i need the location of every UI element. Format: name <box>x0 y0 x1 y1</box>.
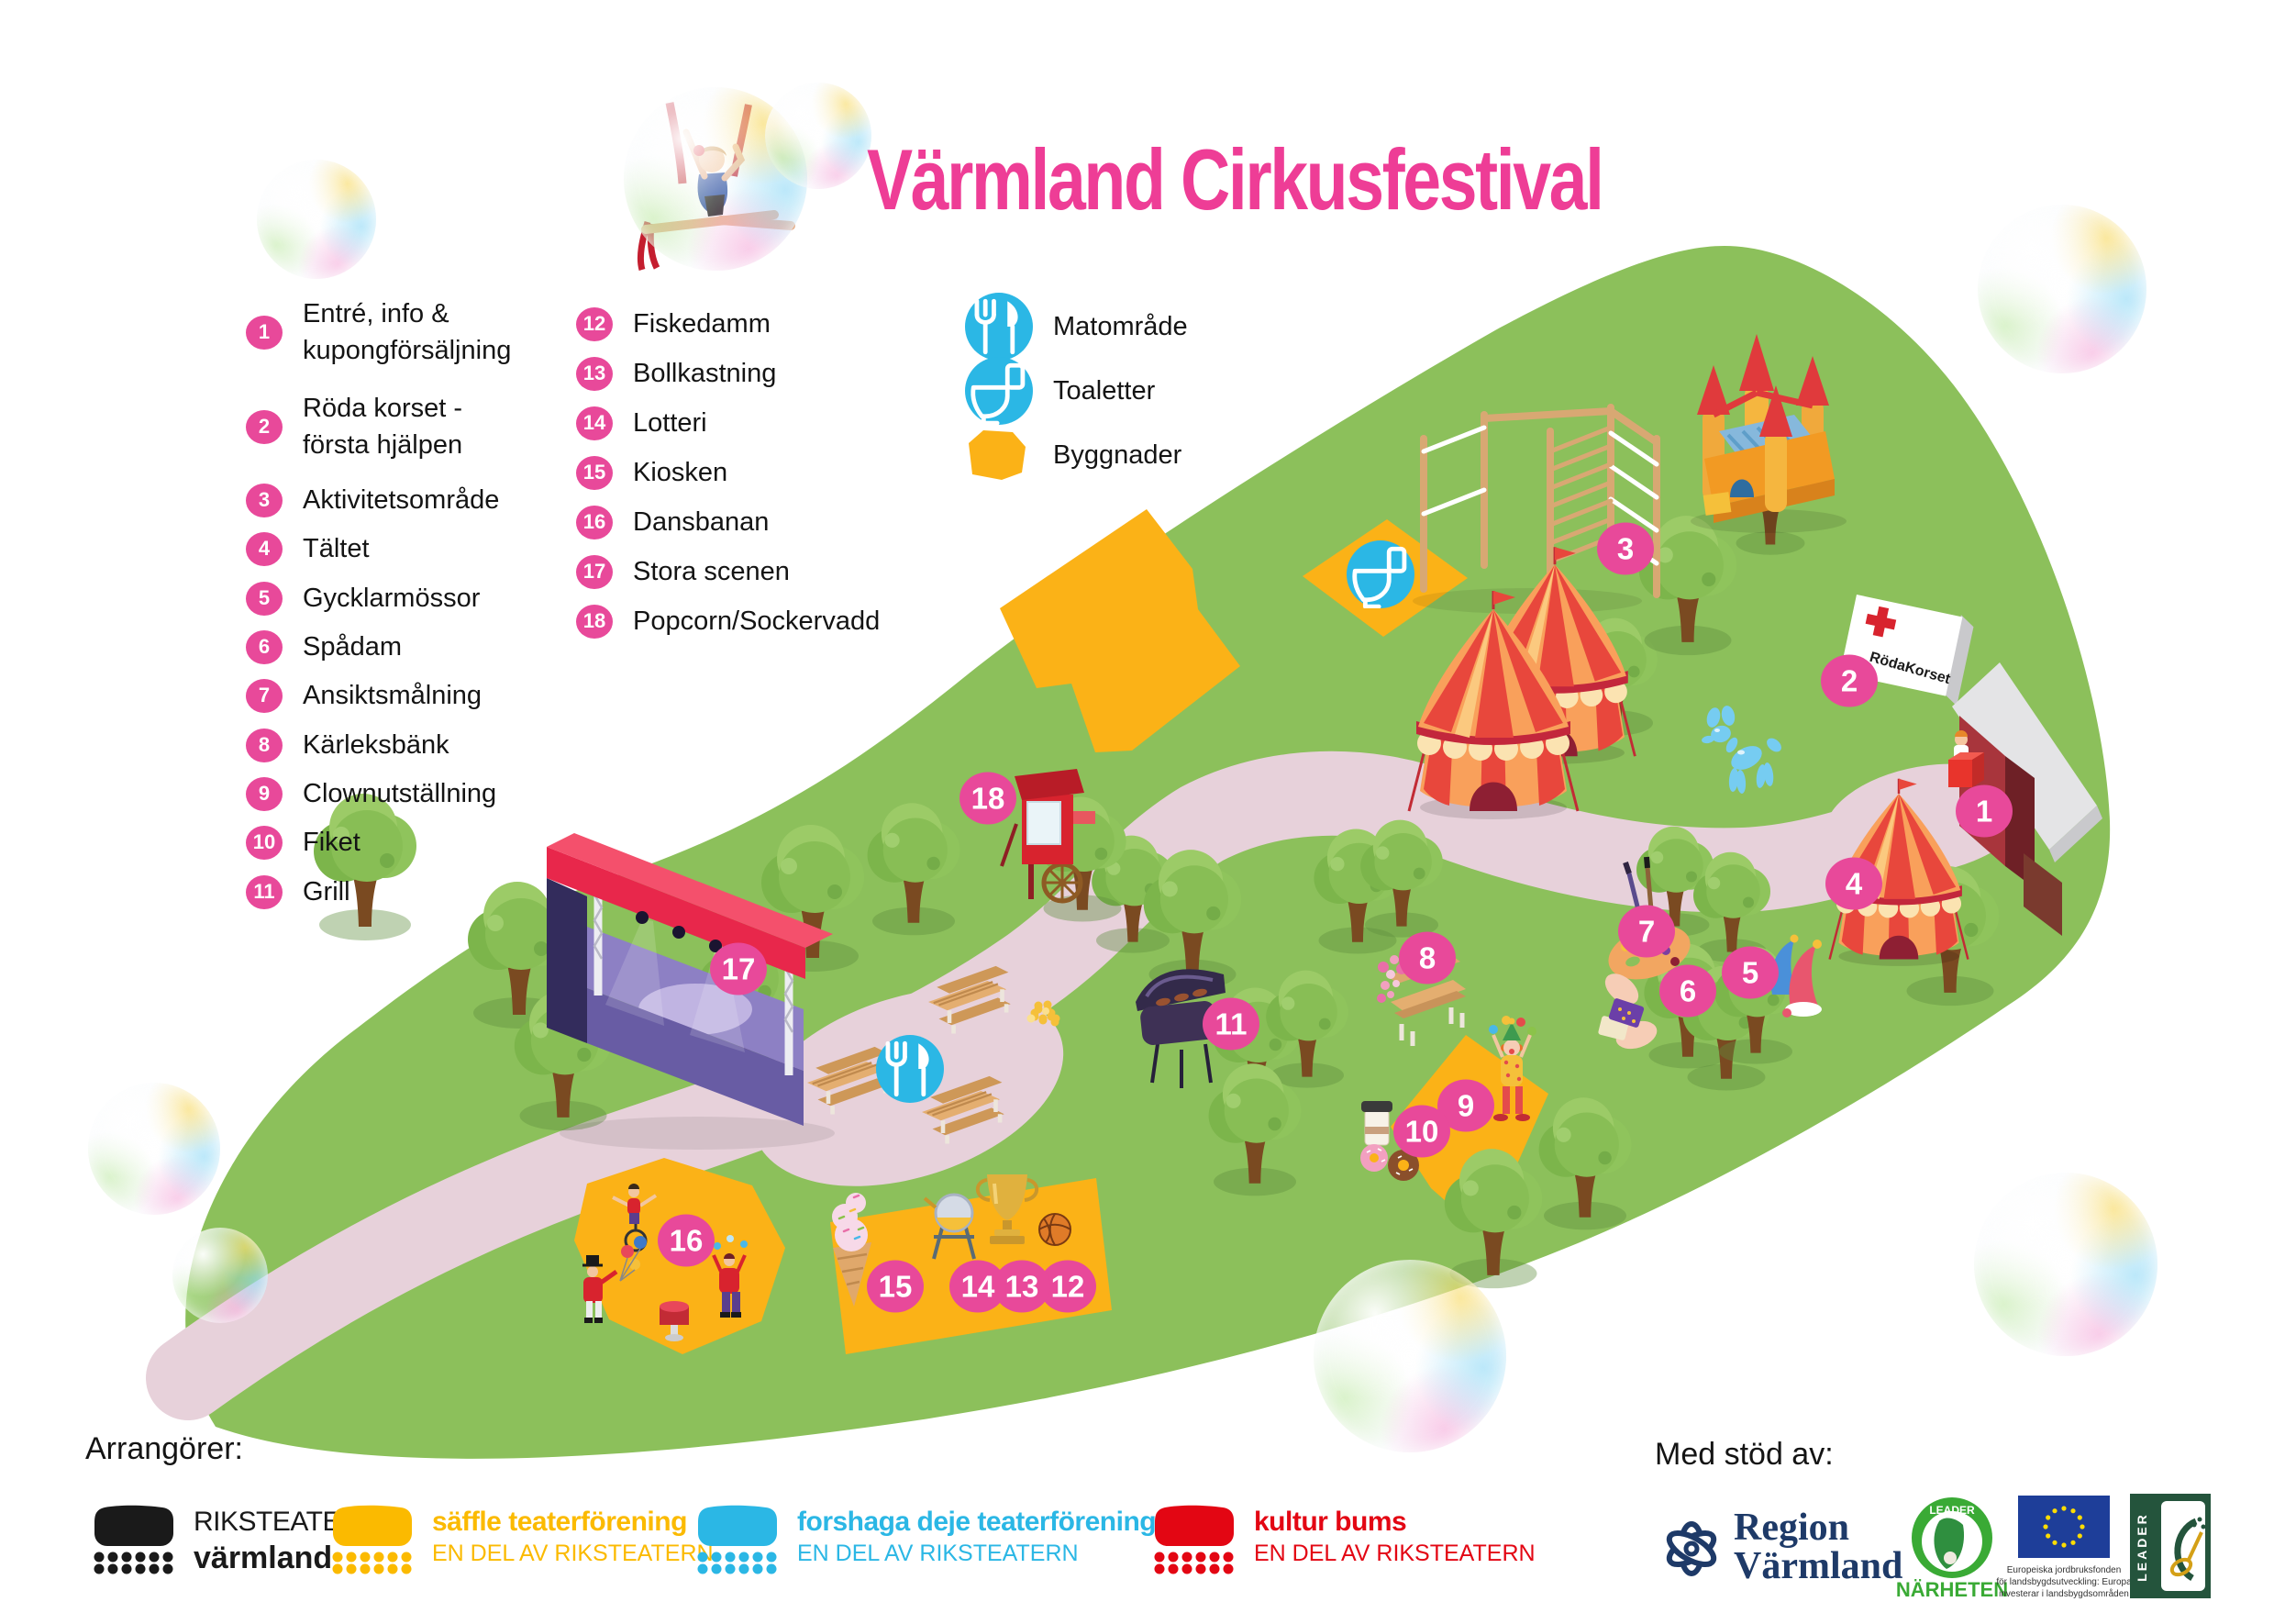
eu-text-line1: Europeiska jordbruksfonden <box>2007 1565 2122 1575</box>
legend-label: Bollkastning <box>633 355 776 392</box>
legend-item-18: 18Popcorn/Sockervadd <box>576 603 880 640</box>
legend-item-8: 8Kärleksbänk <box>246 727 449 763</box>
legend-item-12: 12Fiskedamm <box>576 306 771 342</box>
forshaga-line1: forshaga deje teaterförening <box>797 1507 1156 1538</box>
legend-number-badge: 10 <box>246 825 283 859</box>
legend-label: Toaletter <box>1053 373 1155 409</box>
legend-item-14: 14Lotteri <box>576 405 707 441</box>
saffle-mark-icon <box>330 1505 417 1578</box>
legend-item-11: 11Grill <box>246 873 350 910</box>
legend-label: Dansbanan <box>633 504 769 540</box>
legend-item-15: 15Kiosken <box>576 454 727 491</box>
legend-item-17: 17Stora scenen <box>576 553 790 590</box>
legend-label: Kärleksbänk <box>303 727 449 763</box>
legend-label: Kiosken <box>633 454 727 491</box>
legend-number-badge: 14 <box>576 406 613 439</box>
building-swatch-icon <box>965 421 1033 489</box>
legend-item-16: 16Dansbanan <box>576 504 769 540</box>
region-varmland-logo: Region Värmland <box>1665 1507 1903 1587</box>
region-line1: Region <box>1734 1507 1849 1549</box>
narheten-logo: LEADER NÄRHETEN <box>1896 1497 2008 1601</box>
saffle-line2: EN DEL AV RIKSTEATERN <box>432 1541 714 1567</box>
kultur-bums-logo: kultur bums EN DEL AV RIKSTEATERN <box>1152 1505 1536 1578</box>
riksteatern-mark-icon <box>92 1505 179 1578</box>
legend-label: Grill <box>303 873 350 910</box>
kultur-bums-line2: EN DEL AV RIKSTEATERN <box>1254 1541 1536 1567</box>
legend-number-badge: 12 <box>576 306 613 340</box>
legend-number-badge: 15 <box>576 455 613 489</box>
eu-text-line3: investerar i landsbygdsområden <box>1999 1588 2129 1599</box>
arrangers-label: Arrangörer: <box>85 1431 243 1467</box>
legend-label: Aktivitetsområde <box>303 482 499 518</box>
kultur-bums-line1: kultur bums <box>1254 1507 1536 1538</box>
legend-item-3: 3Aktivitetsområde <box>246 482 499 518</box>
legend-number-badge: 7 <box>246 678 283 712</box>
legend-label: Entré, info &kupongförsäljning <box>303 295 511 369</box>
legend-label: Röda korset -första hjälpen <box>303 390 462 463</box>
legend-label: Tältet <box>303 530 370 567</box>
legend-label: Fiket <box>303 824 360 861</box>
supporter-logos: Region Värmland LEADER NÄRHETEN Europeis… <box>1642 1479 2247 1624</box>
legend-number-badge: 16 <box>576 505 613 539</box>
legend-item-food: Matområde <box>965 293 1188 361</box>
kultur-bums-mark-icon <box>1152 1505 1239 1578</box>
legend-item-2: 2Röda korset -första hjälpen <box>246 390 462 463</box>
forshaga-mark-icon <box>695 1505 782 1578</box>
legend-label: Gycklarmössor <box>303 580 480 617</box>
food-icon <box>965 293 1033 361</box>
legend-item-10: 10Fiket <box>246 824 360 861</box>
legend-number-badge: 17 <box>576 554 613 588</box>
legend-number-badge: 3 <box>246 483 283 517</box>
festival-map-poster: RödaKorset <box>0 0 2296 1624</box>
legend-number-badge: 18 <box>576 604 613 638</box>
legend-label: Fiskedamm <box>633 306 771 342</box>
eu-text-line2: för landsbygdsutveckling: Europa <box>1996 1577 2132 1587</box>
legend-number-badge: 4 <box>246 531 283 565</box>
legend-item-6: 6Spådam <box>246 628 402 665</box>
leader-logo: LEADER <box>2130 1494 2211 1598</box>
legend-number-badge: 8 <box>246 728 283 762</box>
legend-number-badge: 2 <box>246 410 283 444</box>
legend-label: Stora scenen <box>633 553 790 590</box>
legend-item-7: 7Ansiktsmålning <box>246 677 482 714</box>
legend-item-9: 9Clownutställning <box>246 775 496 812</box>
forshaga-line2: EN DEL AV RIKSTEATERN <box>797 1541 1156 1567</box>
legend-item-4: 4Tältet <box>246 530 370 567</box>
legend-number-badge: 11 <box>246 874 283 908</box>
legend-label: Byggnader <box>1053 437 1181 473</box>
legend-item-5: 5Gycklarmössor <box>246 580 480 617</box>
support-label: Med stöd av: <box>1655 1437 1834 1473</box>
legend-label: Matområde <box>1053 308 1188 345</box>
saffle-logo: säffle teaterförening EN DEL AV RIKSTEAT… <box>330 1505 714 1578</box>
legend-item-13: 13Bollkastning <box>576 355 776 392</box>
leader-label: LEADER <box>2135 1512 2149 1582</box>
legend-label: Spådam <box>303 628 402 665</box>
legend-number-badge: 1 <box>246 316 283 350</box>
narheten-arc: LEADER <box>1929 1504 1975 1517</box>
narheten-label: NÄRHETEN <box>1896 1578 2008 1601</box>
legend-item-building: Byggnader <box>965 421 1181 489</box>
legend-label: Ansiktsmålning <box>303 677 482 714</box>
saffle-line1: säffle teaterförening <box>432 1507 714 1538</box>
legend-number-badge: 6 <box>246 629 283 663</box>
forshaga-logo: forshaga deje teaterförening EN DEL AV R… <box>695 1505 1156 1578</box>
legend-label: Popcorn/Sockervadd <box>633 603 880 640</box>
legend: 1Entré, info &kupongförsäljning2Röda kor… <box>0 0 2296 1624</box>
toilet-icon <box>965 357 1033 425</box>
region-line2: Värmland <box>1734 1545 1902 1587</box>
legend-number-badge: 5 <box>246 581 283 615</box>
legend-label: Clownutställning <box>303 775 496 812</box>
legend-item-toilet: Toaletter <box>965 357 1155 425</box>
legend-number-badge: 13 <box>576 356 613 390</box>
legend-number-badge: 9 <box>246 776 283 810</box>
eu-flag: Europeiska jordbruksfonden för landsbygd… <box>1996 1496 2132 1599</box>
legend-label: Lotteri <box>633 405 707 441</box>
legend-item-1: 1Entré, info &kupongförsäljning <box>246 295 511 369</box>
